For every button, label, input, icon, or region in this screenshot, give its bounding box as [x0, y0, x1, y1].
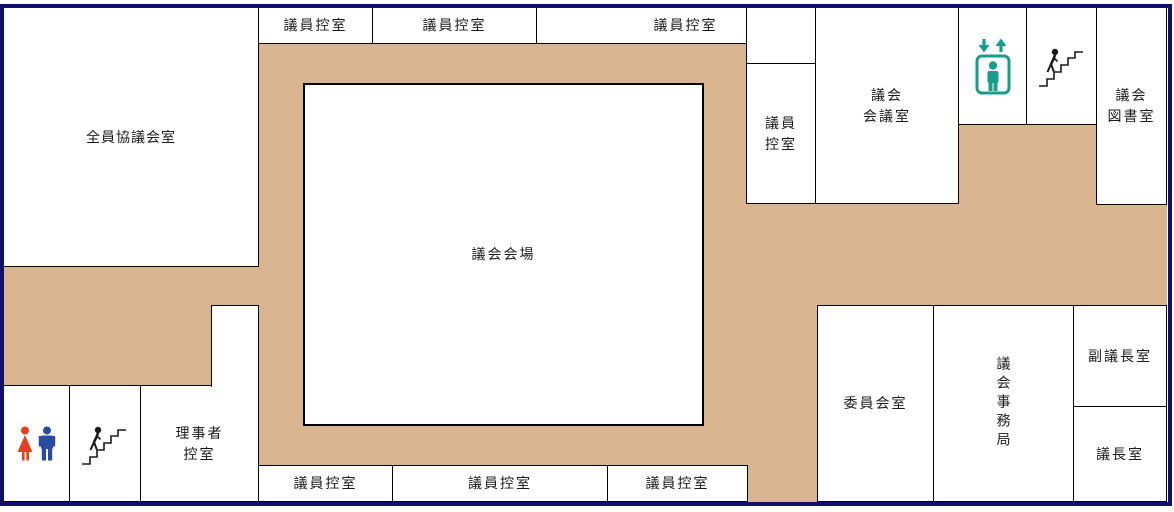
room-executives-waiting: 理事者 控室: [140, 385, 259, 502]
room-label: 議員: [765, 113, 797, 134]
male-figure: [38, 427, 54, 461]
room-label: 委員会室: [844, 393, 908, 414]
room-label: 議会: [1116, 85, 1148, 106]
room-member-waiting-east: 議員 控室: [746, 63, 816, 204]
room-label: 議会会場: [472, 244, 536, 265]
room-unlabeled: [746, 7, 816, 64]
room-label: 図書室: [1108, 106, 1156, 127]
room-council-meeting: 議会 会議室: [815, 7, 959, 204]
room-council-library: 議会 図書室: [1096, 7, 1167, 205]
room-member-waiting-bottom-2: 議員控室: [392, 465, 608, 502]
female-figure: [17, 427, 32, 461]
room-member-waiting-top-1: 議員控室: [258, 7, 373, 44]
room-label: 議員控室: [646, 473, 710, 494]
corridor: [258, 83, 303, 425]
room-label: 副議長室: [1088, 346, 1152, 367]
council-floor-plan: 全員協議会室 議員控室 議員控室 議員控室 議員 控室 議会 会議室: [0, 0, 1174, 512]
stairs-icon: [80, 423, 130, 465]
room-label: 議会事務局: [994, 356, 1014, 451]
room-member-waiting-bottom-3: 議員控室: [607, 465, 748, 502]
room-member-waiting-top-2: 議員控室: [372, 7, 537, 44]
room-council-secretariat: 議会事務局: [933, 305, 1074, 502]
room-label: 会議室: [863, 106, 911, 127]
room-stairs-south: [69, 385, 141, 502]
room-committee: 委員会室: [817, 305, 934, 502]
corridor: [4, 265, 258, 305]
room-restroom: [3, 385, 70, 502]
corridor: [748, 305, 817, 502]
corridor: [958, 124, 1097, 204]
room-label: 控室: [184, 444, 216, 465]
stairs-icon: [1037, 45, 1087, 87]
room-label: 議会: [871, 85, 903, 106]
room-label: 議員控室: [468, 473, 532, 494]
room-label: 議員控室: [284, 15, 348, 36]
elevator-icon: [973, 37, 1013, 95]
room-member-waiting-bottom-1: 議員控室: [258, 465, 393, 502]
room-label: 全員協議会室: [86, 127, 176, 148]
room-label: 議員控室: [654, 15, 718, 36]
room-label: 控室: [765, 134, 797, 155]
corridor: [4, 305, 211, 385]
room-stairs-north: [1026, 7, 1097, 125]
corridor: [703, 83, 748, 425]
restroom-icon: [14, 425, 60, 462]
room-label: 理事者: [176, 423, 224, 444]
room-executives-waiting-annex: [211, 305, 259, 387]
corridor: [258, 44, 748, 83]
room-label: 議長室: [1096, 444, 1144, 465]
corridor: [258, 425, 748, 465]
room-label: 議員控室: [294, 473, 358, 494]
room-speaker: 議長室: [1073, 406, 1167, 502]
room-assembly-hall: 議会会場: [303, 83, 704, 426]
room-all-members-meeting: 全員協議会室: [3, 7, 259, 267]
room-vice-speaker: 副議長室: [1073, 305, 1167, 407]
room-member-waiting-top-3: 議員控室: [536, 7, 747, 44]
room-label: 議員控室: [423, 15, 487, 36]
room-elevator: [958, 7, 1027, 125]
corridor: [748, 204, 1167, 305]
